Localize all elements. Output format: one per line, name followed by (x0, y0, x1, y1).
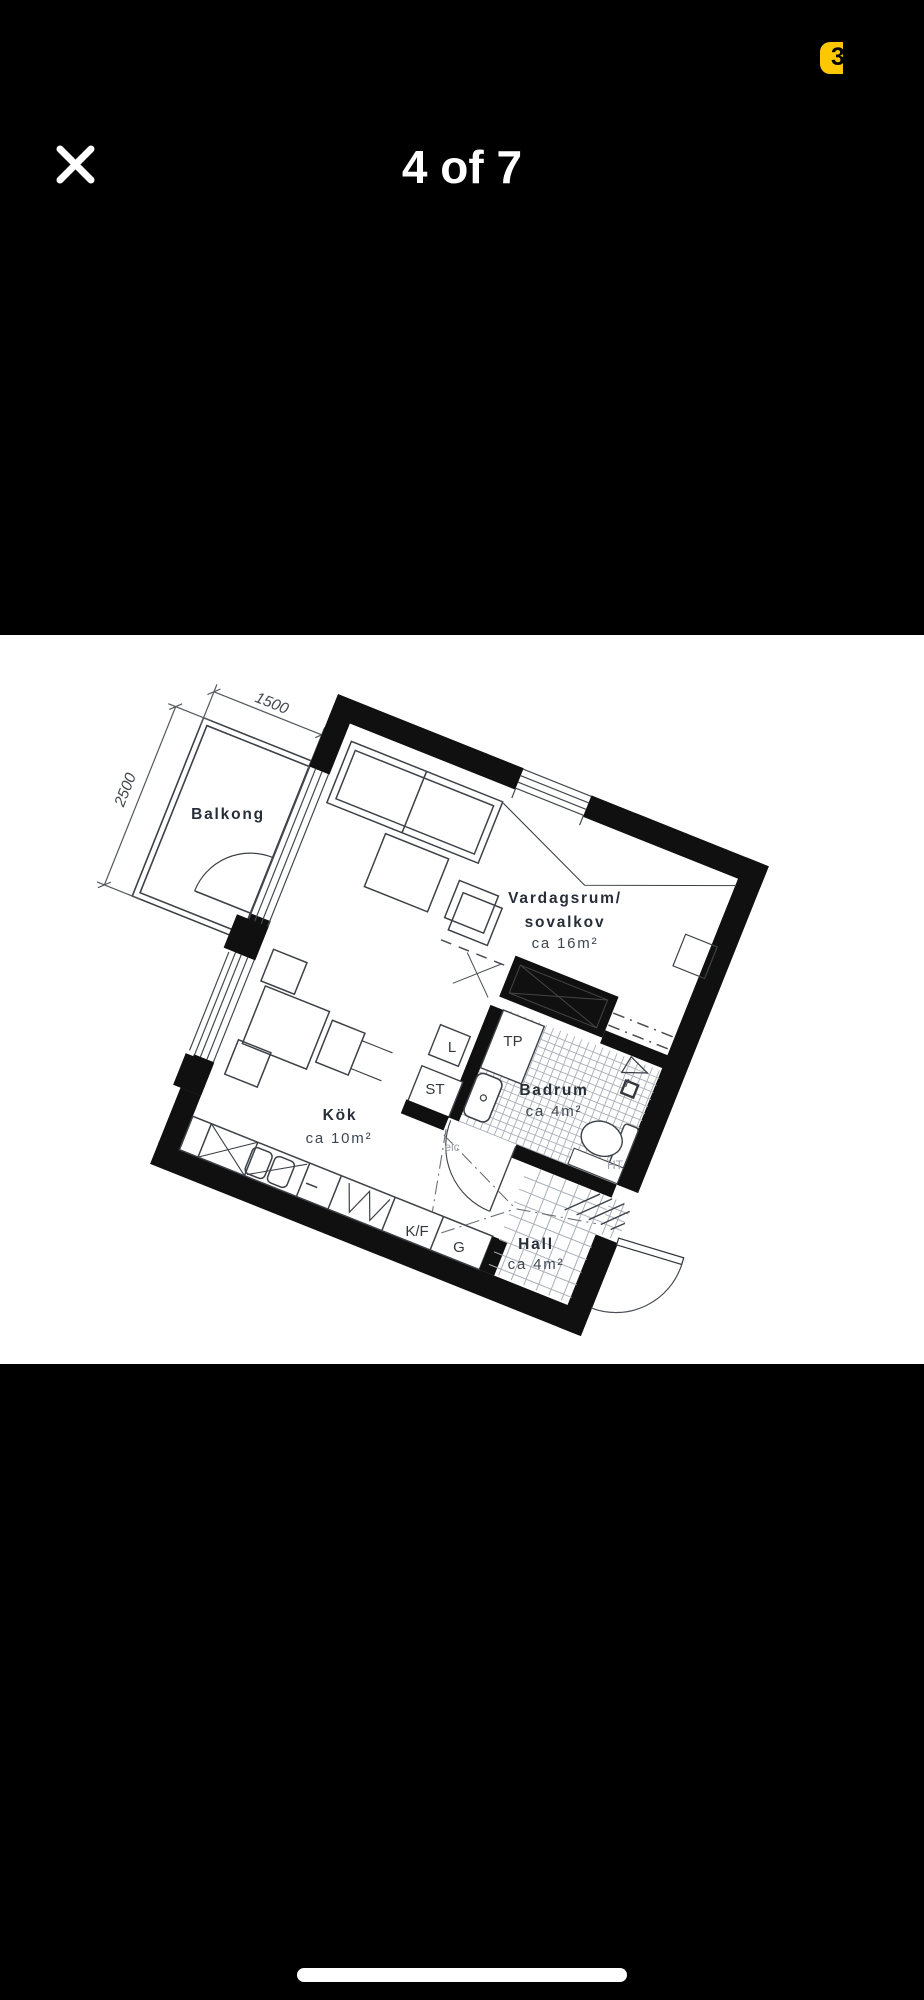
svg-text:Vardagsrum/: Vardagsrum/ (508, 890, 622, 907)
svg-text:ST: ST (425, 1081, 444, 1098)
svg-text:elc: elc (444, 1140, 459, 1154)
svg-text:HT: HT (607, 1158, 624, 1172)
svg-text:2500: 2500 (111, 770, 140, 810)
svg-text:1500: 1500 (253, 689, 292, 718)
svg-text:ca 10m²: ca 10m² (306, 1130, 373, 1147)
svg-text:Hall: Hall (518, 1236, 554, 1253)
svg-text:TP: TP (503, 1033, 522, 1050)
svg-text:Balkong: Balkong (191, 806, 265, 823)
svg-text:K/F: K/F (405, 1223, 428, 1240)
svg-text:Kök: Kök (323, 1107, 358, 1124)
svg-text:L: L (448, 1039, 456, 1056)
svg-text:ca 4m²: ca 4m² (508, 1256, 565, 1273)
svg-text:ca 4m²: ca 4m² (526, 1103, 583, 1120)
svg-text:ca 16m²: ca 16m² (532, 935, 599, 952)
svg-text:Badrum: Badrum (519, 1082, 588, 1099)
svg-text:sovalkov: sovalkov (525, 914, 606, 931)
svg-text:G: G (453, 1239, 465, 1256)
